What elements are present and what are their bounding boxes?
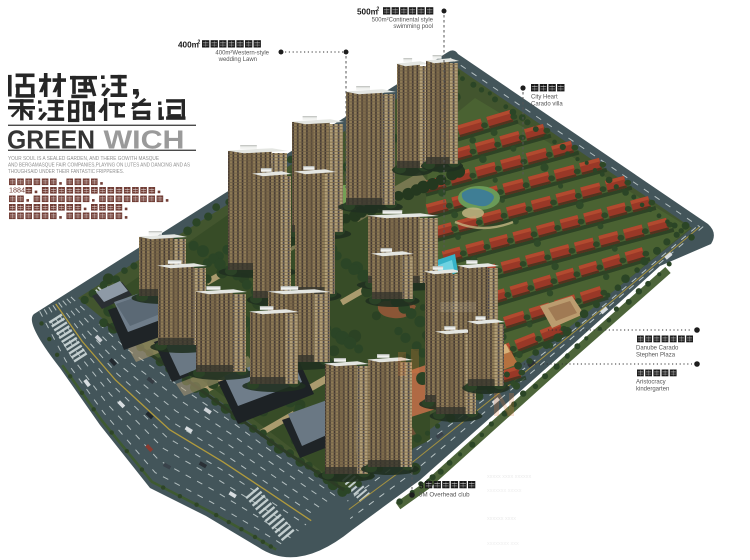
- svg-text:xxxxxxxx xxx: xxxxxxxx xxx: [487, 541, 519, 547]
- svg-text:400m: 400m: [178, 41, 199, 50]
- svg-text:Stephen Plaza: Stephen Plaza: [636, 353, 676, 359]
- svg-text:2: 2: [377, 7, 380, 13]
- svg-text:5M Overhead club: 5M Overhead club: [419, 492, 470, 499]
- svg-text:500m: 500m: [357, 8, 378, 17]
- svg-text:AND BERGAMASQUE FAIR COMPANIES: AND BERGAMASQUE FAIR COMPANIES,PLAYING O…: [8, 163, 190, 169]
- svg-text:City Heart: City Heart: [531, 95, 558, 101]
- svg-text:swimming pool: swimming pool: [393, 24, 433, 30]
- svg-text:500m²Continental style: 500m²Continental style: [372, 18, 434, 24]
- svg-text:xxxxxx xxxx: xxxxxx xxxx: [487, 516, 516, 522]
- svg-text:YOUR SOUL IS A SEALED GARDEN,: YOUR SOUL IS A SEALED GARDEN, AND THERE …: [8, 156, 159, 162]
- svg-text:xxxxx xxxx xxxxxx: xxxxx xxxx xxxxxx: [487, 474, 532, 480]
- svg-text:5: 5: [419, 482, 424, 491]
- svg-text:Carado villa: Carado villa: [531, 102, 563, 108]
- svg-text:Aristocracy: Aristocracy: [636, 380, 666, 386]
- svg-text:kindergarten: kindergarten: [636, 387, 669, 393]
- svg-text:1884: 1884: [9, 186, 25, 195]
- svg-text:xxxxxxx xxxxx: xxxxxxx xxxxx: [487, 488, 522, 494]
- svg-text:THOUGHSAID UNDER THEIR FANTAST: THOUGHSAID UNDER THEIR FANTASTIC FRIPPER…: [8, 169, 124, 175]
- svg-text:400m²Western-style: 400m²Western-style: [215, 51, 269, 57]
- svg-text:wedding Lawn: wedding Lawn: [218, 57, 257, 63]
- svg-text:2: 2: [198, 40, 201, 46]
- svg-text:Danube Carado: Danube Carado: [636, 346, 679, 352]
